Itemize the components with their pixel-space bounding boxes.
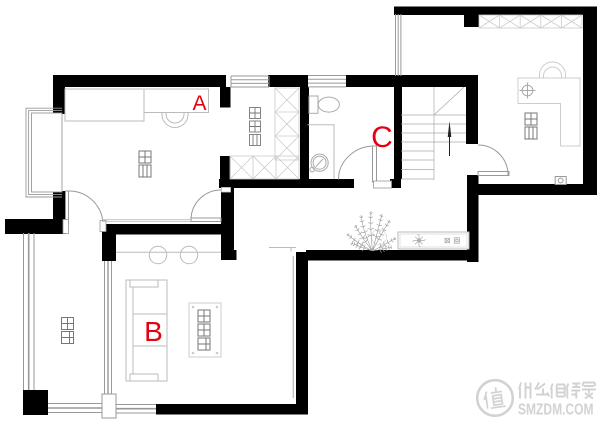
svg-text:B: B [144,316,163,347]
svg-text:A: A [192,92,206,115]
svg-text:C: C [371,121,393,154]
svg-text:SMZDM.COM: SMZDM.COM [518,402,594,419]
